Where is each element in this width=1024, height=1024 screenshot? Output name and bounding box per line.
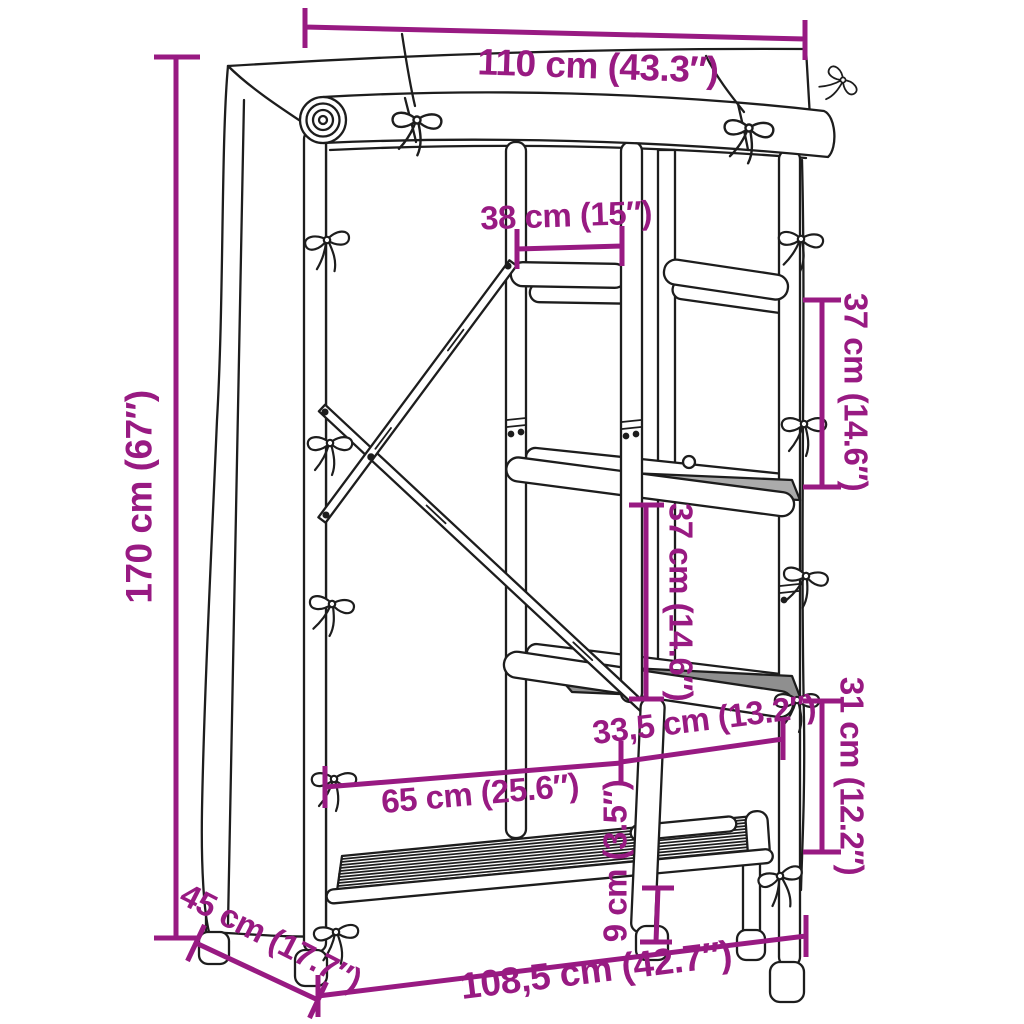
dim-label-top-width: 110 cm (43.3″) (477, 43, 719, 88)
wardrobe-dimension-diagram: 110 cm (43.3″) 38 cm (15″) 170 cm (67″) … (0, 0, 1024, 1024)
dim-label-upper-shelf-gap: 37 cm (14.6″) (840, 293, 873, 491)
right-front-post (779, 150, 800, 966)
dim-label-middle-shelf-gap: 37 cm (14.6″) (665, 503, 698, 701)
cross-brace-strut (318, 260, 516, 522)
dim-line-total-height (154, 57, 200, 938)
dim-line-upper-shelf-gap (803, 300, 841, 487)
dim-label-upper-shelf-width: 38 cm (15″) (480, 196, 653, 235)
left-front-post (304, 130, 326, 952)
dim-label-total-height: 170 cm (67″) (121, 390, 158, 603)
dim-label-lower-right-gap: 31 cm (12.2″) (836, 677, 869, 875)
upper-shelf-rail (511, 262, 627, 288)
foot (770, 962, 804, 1002)
dim-label-base-clearance: 9 cm (3.5″) (599, 780, 632, 943)
